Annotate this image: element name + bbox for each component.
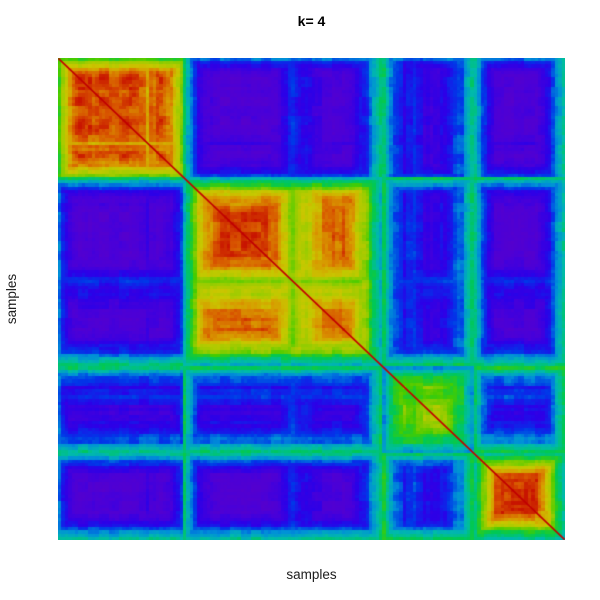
x-axis-label: samples [58,567,565,582]
figure: k= 4 samples samples [0,0,600,600]
chart-title: k= 4 [58,13,565,29]
consensus-heatmap [58,58,565,540]
y-axis-label: samples [0,58,24,540]
